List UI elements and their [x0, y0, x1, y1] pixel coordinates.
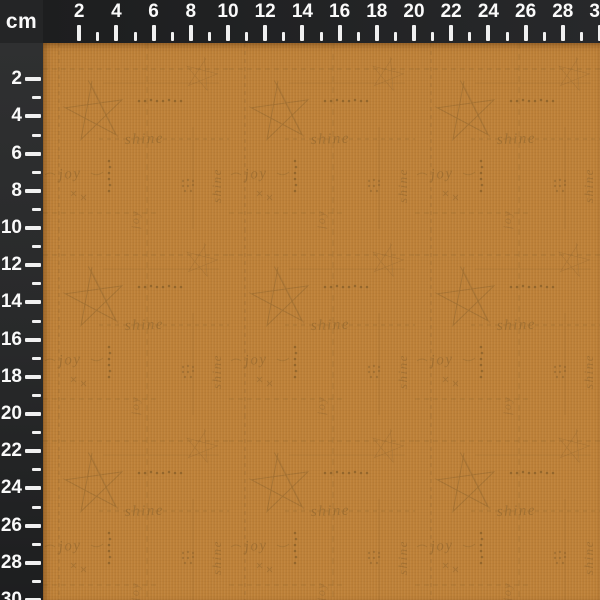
ruler-number: 4	[96, 1, 136, 23]
ruler-tick-major	[226, 25, 230, 41]
ruler-number: 20	[394, 1, 434, 23]
ruler-tick-minor	[32, 208, 41, 211]
ruler-number: 28	[0, 552, 22, 574]
ruler-tick-major	[25, 189, 41, 193]
ruler-number: 26	[0, 515, 22, 537]
ruler-tick-major	[25, 486, 41, 490]
ruler-tick-minor	[282, 32, 285, 41]
ruler-tick-major	[25, 152, 41, 156]
ruler-number: 14	[0, 291, 22, 313]
ruler-number: 14	[282, 1, 322, 23]
ruler-number: 18	[357, 1, 397, 23]
ruler-tick-major	[561, 25, 565, 41]
ruler-number: 2	[0, 68, 22, 90]
ruler-number: 8	[171, 1, 211, 23]
ruler-tick-minor	[32, 245, 41, 248]
ruler-tick-minor	[32, 431, 41, 434]
ruler-number: 18	[0, 366, 22, 388]
ruler-tick-major	[25, 263, 41, 267]
ruler-number: 16	[320, 1, 360, 23]
ruler-tick-major	[25, 375, 41, 379]
ruler-tick-major	[25, 300, 41, 304]
ruler-number: 22	[431, 1, 471, 23]
ruler-tick-major	[25, 226, 41, 230]
ruler-corner-unit-box: cm	[0, 0, 43, 43]
ruler-number: 4	[0, 105, 22, 127]
ruler-tick-major	[449, 25, 453, 41]
ruler-tick-minor	[32, 171, 41, 174]
ruler-tick-minor	[320, 32, 323, 41]
ruler-tick-major	[152, 25, 156, 41]
ruler-number: 6	[134, 1, 174, 23]
fabric-area: shine joy shine joy	[43, 43, 600, 600]
ruler-number: 12	[245, 1, 285, 23]
ruler-number: 12	[0, 254, 22, 276]
ruler-tick-minor	[32, 96, 41, 99]
ruler-tick-major	[25, 114, 41, 118]
ruler-tick-major	[25, 77, 41, 81]
ruler-tick-major	[25, 449, 41, 453]
ruler-tick-minor	[32, 543, 41, 546]
ruler-number: 16	[0, 329, 22, 351]
ruler-number: 24	[468, 1, 508, 23]
ruler-tick-minor	[171, 32, 174, 41]
fabric-pattern: shine joy shine joy	[43, 43, 600, 600]
ruler-tick-major	[189, 25, 193, 41]
ruler-tick-minor	[208, 32, 211, 41]
ruler-left: 24681012141618202224262830	[0, 43, 43, 600]
ruler-tick-minor	[32, 134, 41, 137]
ruler-tick-major	[263, 25, 267, 41]
ruler-tick-minor	[245, 32, 248, 41]
ruler-tick-minor	[32, 320, 41, 323]
ruler-tick-minor	[32, 468, 41, 471]
ruler-tick-major	[300, 25, 304, 41]
ruler-tick-major	[25, 338, 41, 342]
ruler-number: 28	[543, 1, 583, 23]
ruler-tick-minor	[543, 32, 546, 41]
ruler-tick-minor	[96, 32, 99, 41]
ruler-number: 30	[580, 1, 600, 23]
ruler-tick-minor	[134, 32, 137, 41]
ruler-number: 24	[0, 477, 22, 499]
unit-label: cm	[6, 10, 37, 34]
ruler-number: 22	[0, 440, 22, 462]
ruler-tick-major	[114, 25, 118, 41]
ruler-tick-minor	[580, 32, 583, 41]
ruler-number: 8	[0, 180, 22, 202]
ruler-number: 26	[506, 1, 546, 23]
ruler-number: 10	[0, 217, 22, 239]
ruler-tick-major	[77, 25, 81, 41]
ruler-number: 30	[0, 589, 22, 600]
ruler-tick-major	[25, 561, 41, 565]
ruler-tick-major	[375, 25, 379, 41]
ruler-tick-minor	[506, 32, 509, 41]
ruler-tick-minor	[431, 32, 434, 41]
ruler-tick-minor	[32, 580, 41, 583]
ruler-tick-major	[412, 25, 416, 41]
ruler-number: 2	[59, 1, 99, 23]
ruler-tick-major	[524, 25, 528, 41]
ruler-tick-minor	[32, 357, 41, 360]
ruler-tick-minor	[32, 282, 41, 285]
ruler-tick-major	[486, 25, 490, 41]
ruler-number: 6	[0, 143, 22, 165]
ruler-tick-minor	[32, 394, 41, 397]
ruler-tick-major	[25, 412, 41, 416]
ruler-tick-minor	[357, 32, 360, 41]
ruler-number: 20	[0, 403, 22, 425]
ruler-tick-minor	[468, 32, 471, 41]
fabric-swatch-photo: shine joy shine joy	[0, 0, 600, 600]
ruler-tick-major	[338, 25, 342, 41]
ruler-number: 10	[208, 1, 248, 23]
ruler-top: 24681012141618202224262830	[43, 0, 600, 43]
ruler-tick-minor	[394, 32, 397, 41]
ruler-tick-minor	[32, 506, 41, 509]
ruler-tick-major	[25, 524, 41, 528]
